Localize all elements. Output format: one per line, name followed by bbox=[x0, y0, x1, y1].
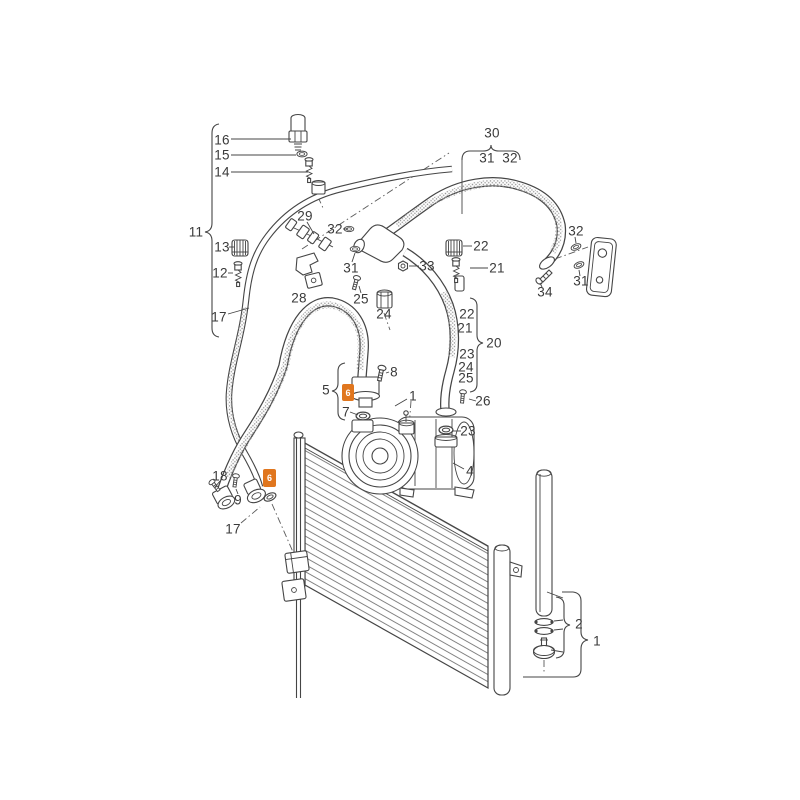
part-label-32-8[interactable]: 32 bbox=[327, 222, 343, 236]
part-label-5-30[interactable]: 5 bbox=[322, 383, 330, 397]
part-label-28-13[interactable]: 28 bbox=[291, 291, 307, 305]
part-label-4-34[interactable]: 4 bbox=[466, 464, 474, 478]
part-label-1-32[interactable]: 1 bbox=[409, 389, 417, 403]
part-label-33-10[interactable]: 33 bbox=[419, 259, 435, 273]
part-label-1-39[interactable]: 1 bbox=[593, 634, 601, 648]
parts-diagram-page: 1615141113121729323133252428303132222132… bbox=[0, 0, 800, 800]
part-label-12-5[interactable]: 12 bbox=[212, 266, 228, 280]
part-label-31-15[interactable]: 31 bbox=[479, 151, 495, 165]
part-label-20-24[interactable]: 20 bbox=[486, 336, 502, 350]
part-label-14-2[interactable]: 14 bbox=[214, 165, 230, 179]
part-label-25-27[interactable]: 25 bbox=[458, 371, 474, 385]
part-label-18-35[interactable]: 18 bbox=[212, 469, 228, 483]
part-label-22-17[interactable]: 22 bbox=[473, 239, 489, 253]
part-label-31-9[interactable]: 31 bbox=[343, 261, 359, 275]
part-label-23-33[interactable]: 23 bbox=[460, 424, 476, 438]
part-label-32-16[interactable]: 32 bbox=[502, 151, 518, 165]
part-label-13-4[interactable]: 13 bbox=[214, 240, 230, 254]
part-label-30-14[interactable]: 30 bbox=[484, 126, 500, 140]
part-label-34-21[interactable]: 34 bbox=[537, 285, 553, 299]
part-label-24-12[interactable]: 24 bbox=[376, 307, 392, 321]
part-label-8-29[interactable]: 8 bbox=[390, 365, 398, 379]
part-label-29-7[interactable]: 29 bbox=[297, 209, 313, 223]
part-label-7-31[interactable]: 7 bbox=[342, 405, 350, 419]
part-label-21-23[interactable]: 21 bbox=[457, 321, 473, 335]
part-label-25-11[interactable]: 25 bbox=[353, 292, 369, 306]
highlighted-part-6-1[interactable]: 6 bbox=[263, 469, 276, 487]
part-label-9-36[interactable]: 9 bbox=[234, 493, 242, 507]
part-label-31-20[interactable]: 31 bbox=[573, 274, 589, 288]
part-label-17-37[interactable]: 17 bbox=[225, 522, 241, 536]
part-label-32-19[interactable]: 32 bbox=[568, 224, 584, 238]
part-label-15-1[interactable]: 15 bbox=[214, 148, 230, 162]
part-label-22-22[interactable]: 22 bbox=[459, 307, 475, 321]
part-label-17-6[interactable]: 17 bbox=[211, 310, 227, 324]
highlighted-part-6-0[interactable]: 6 bbox=[342, 384, 354, 401]
part-label-2-38[interactable]: 2 bbox=[575, 617, 583, 631]
part-label-11-3[interactable]: 11 bbox=[189, 225, 204, 239]
part-label-26-28[interactable]: 26 bbox=[475, 394, 491, 408]
part-label-21-18[interactable]: 21 bbox=[489, 261, 505, 275]
labels-overlay: 1615141113121729323133252428303132222132… bbox=[0, 0, 800, 800]
part-label-16-0[interactable]: 16 bbox=[214, 133, 230, 147]
